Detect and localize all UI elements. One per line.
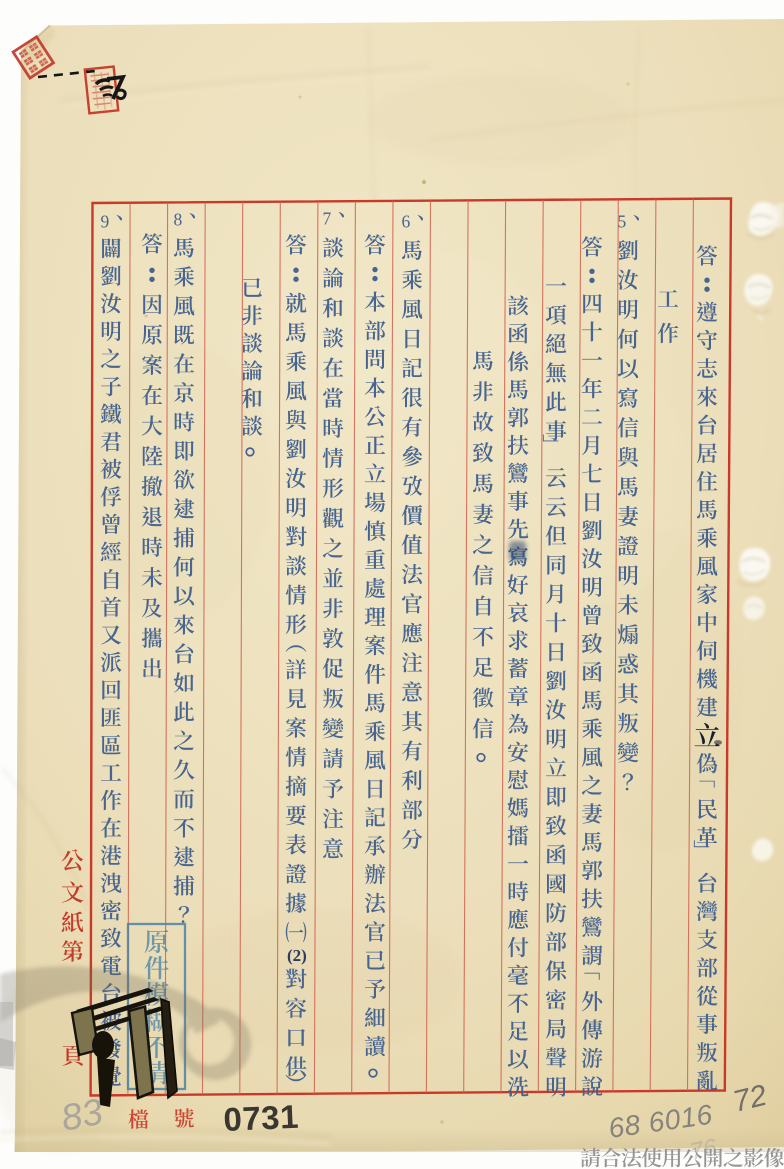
svg-text:0731: 0731 bbox=[223, 1098, 300, 1138]
svg-text:8: 8 bbox=[174, 210, 183, 230]
svg-text:5: 5 bbox=[618, 212, 627, 232]
svg-text:83: 83 bbox=[58, 1091, 107, 1139]
svg-text:9: 9 bbox=[101, 212, 110, 232]
svg-text:7: 7 bbox=[323, 209, 332, 229]
svg-text:(2): (2) bbox=[287, 946, 307, 965]
svg-text:6: 6 bbox=[402, 212, 411, 232]
